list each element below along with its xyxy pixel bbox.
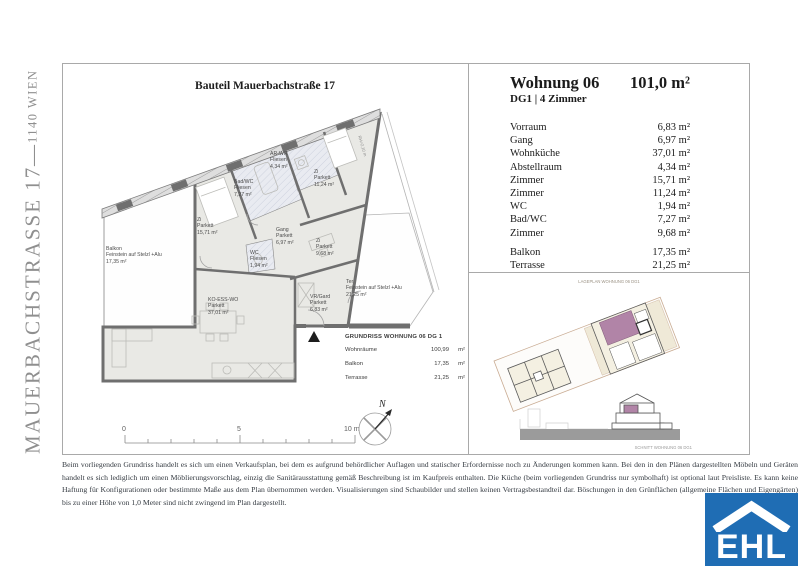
unit-subtitle: DG1 | 4 Zimmer (510, 93, 587, 105)
plan-summary-title: GRUNDRISS WOHNUNG 06 DG 1 (345, 334, 465, 340)
entrance-marker-icon (308, 331, 320, 342)
floorplan-panel: Bauteil Mauerbachstraße 17 (62, 63, 468, 455)
room-row: Vorraum6,83 m² (510, 121, 690, 134)
room-row: Abstellraum4,34 m² (510, 161, 690, 174)
room-label-badwc: Bad/WCFliesen7,27 m² (234, 179, 253, 198)
room-label-zi2: ZiParkett11,24 m² (314, 169, 334, 188)
room-list: Vorraum6,83 m²Gang6,97 m²Wohnküche37,01 … (510, 121, 690, 272)
section-drawing (520, 394, 680, 440)
room-label-vrgard: VR/GardParkett6,83 m² (310, 294, 330, 313)
room-row: Balkon17,35 m² (510, 246, 690, 259)
summary-row: Balkon17,35m² (345, 361, 465, 367)
side-title-sub: 1140 WIEN (26, 69, 41, 143)
unit-title: Wohnung 06 (510, 73, 599, 93)
brochure-page: MAUERBACHSTRASSE 17 — 1140 WIEN Bauteil … (0, 0, 800, 566)
room-row: Terrasse21,25 m² (510, 259, 690, 272)
room-label-wc: WCFliesen1,94 m² (250, 250, 268, 269)
summary-row: Terrasse21,25m² (345, 375, 465, 381)
room-row: Wohnküche37,01 m² (510, 147, 690, 160)
room-label-koesswo: KO-ESS-WOParkett37,01 m² (208, 297, 238, 316)
scale-bar (125, 435, 355, 443)
svg-text:10 m: 10 m (344, 426, 360, 433)
room-label-zi1: ZiParkett15,71 m² (197, 217, 217, 236)
room-label-balkon: BalkonFeinstein auf Stelzl +Alu17,35 m² (106, 246, 162, 265)
room-row: Bad/WC7,27 m² (510, 213, 690, 226)
svg-text:5: 5 (237, 426, 241, 433)
section-unit-highlight (624, 405, 638, 413)
svg-text:0: 0 (122, 426, 126, 433)
room-row: Zimmer11,24 m² (510, 187, 690, 200)
footer-disclaimer: Beim vorliegenden Grundriss handelt es s… (62, 459, 798, 509)
room-label-zi3: ZiParkett9,68 m² (316, 238, 334, 257)
logo-roof-icon (705, 498, 798, 532)
siteplan-caption: LAGEPLAN WOHNUNG 06 DG1 (578, 279, 640, 284)
siteplan-drawing: LAGEPLAN WOHNUNG 06 DG1 (468, 273, 750, 455)
north-arrow-icon: N (359, 399, 392, 445)
summary-row: Wohnräume100,99m² (345, 347, 465, 353)
plan-summary-table: GRUNDRISS WOHNUNG 06 DG 1 Wohnräume100,9… (345, 334, 465, 389)
unit-total-area: 101,0 m² (630, 73, 690, 93)
side-title-separator: — (21, 143, 46, 166)
scale-labels: 0 5 10 m (122, 426, 360, 433)
section-ground (520, 429, 680, 440)
site-plot (494, 297, 680, 411)
side-title-main: MAUERBACHSTRASSE 17 (21, 166, 46, 454)
unit-details-panel: Wohnung 06 101,0 m² DG1 | 4 Zimmer Vorra… (468, 63, 750, 455)
room-label-arwr: AR-WRFliesen4,34 m² (270, 151, 288, 170)
room-label-ter: TerFeinstein auf Stelzl +Alu21,25 m² (346, 279, 402, 298)
room-row: WC1,94 m² (510, 200, 690, 213)
room-label-gang: GangParkett6,97 m² (276, 227, 294, 246)
room-row: Gang6,97 m² (510, 134, 690, 147)
logo-text: EHL (716, 532, 787, 562)
side-title: MAUERBACHSTRASSE 17 — 1140 WIEN (12, 58, 54, 454)
svg-text:N: N (378, 399, 387, 410)
ehl-logo: EHL (705, 493, 798, 566)
section-caption: SCHNITT WOHNUNG 06 DG1 (635, 445, 693, 450)
room-row: Zimmer15,71 m² (510, 174, 690, 187)
room-row: Zimmer9,68 m² (510, 227, 690, 240)
section-building (612, 394, 672, 429)
